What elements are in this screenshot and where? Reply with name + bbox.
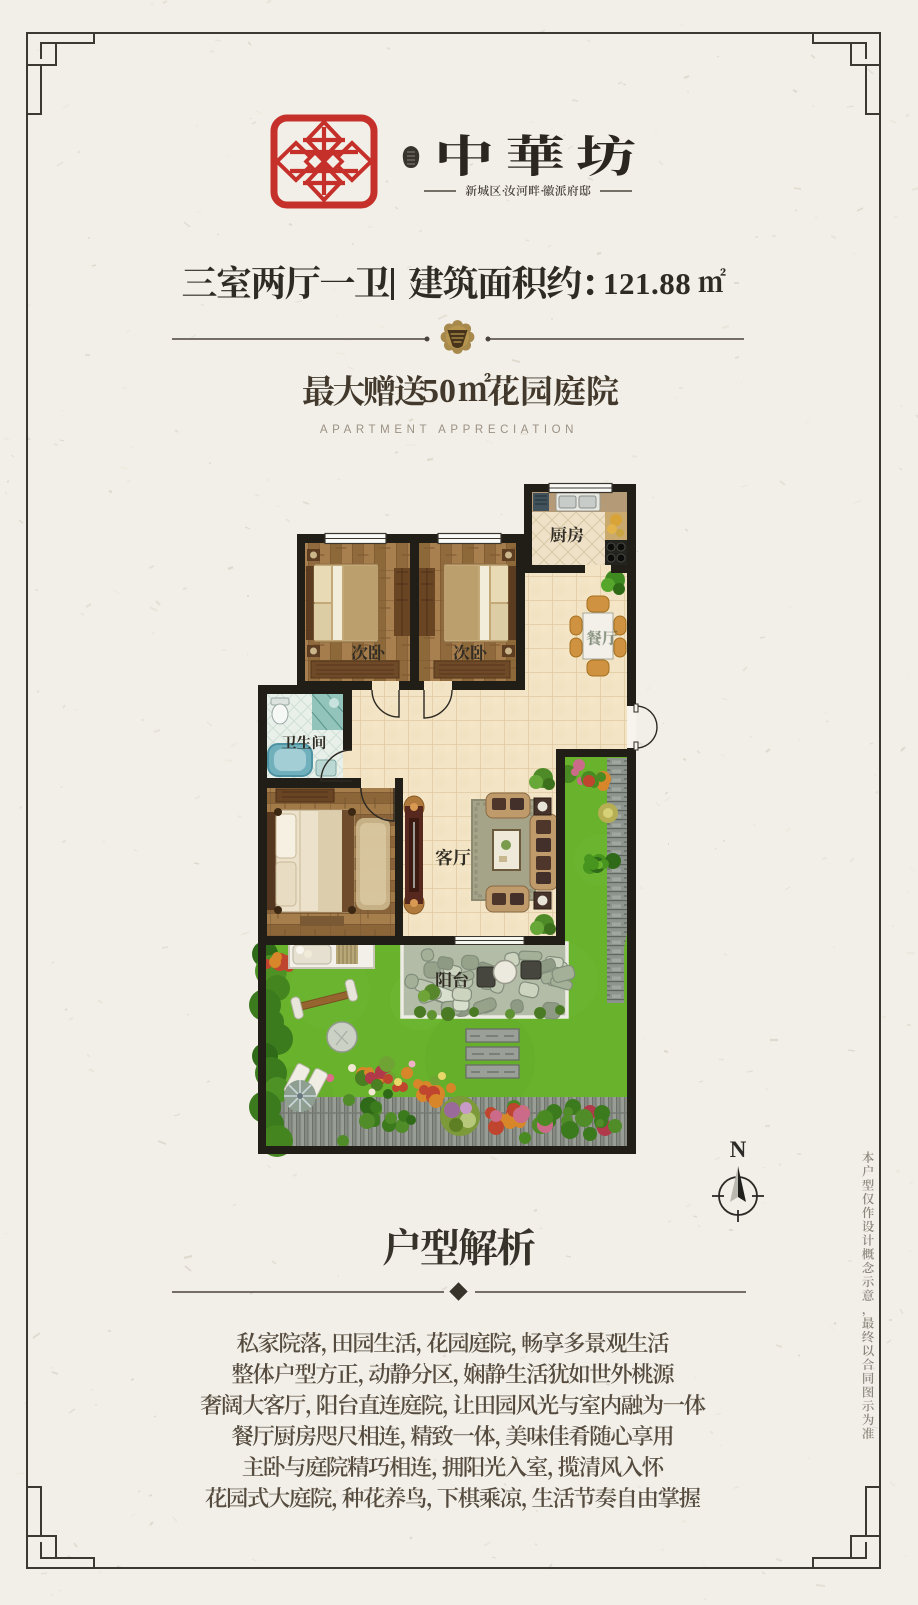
svg-text:121.88: 121.88 xyxy=(603,266,691,301)
svg-text:50: 50 xyxy=(422,373,456,410)
svg-text:APARTMENT APPRECIATION: APARTMENT APPRECIATION xyxy=(320,424,578,436)
svg-text:N: N xyxy=(730,1137,747,1162)
